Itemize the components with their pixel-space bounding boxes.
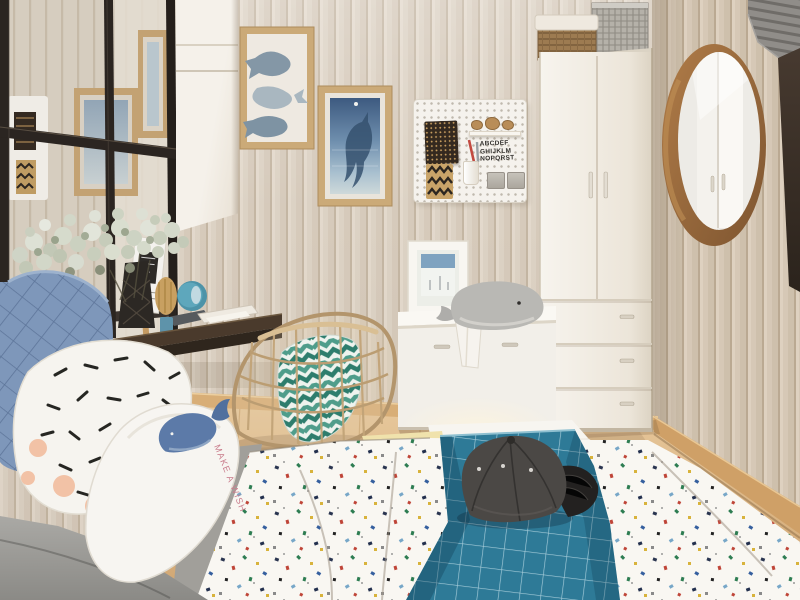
bedroom-photo: ABCDEF GHIJKLM NOPQRST [0,0,800,600]
pillows: MAKE A WISH [0,0,800,600]
